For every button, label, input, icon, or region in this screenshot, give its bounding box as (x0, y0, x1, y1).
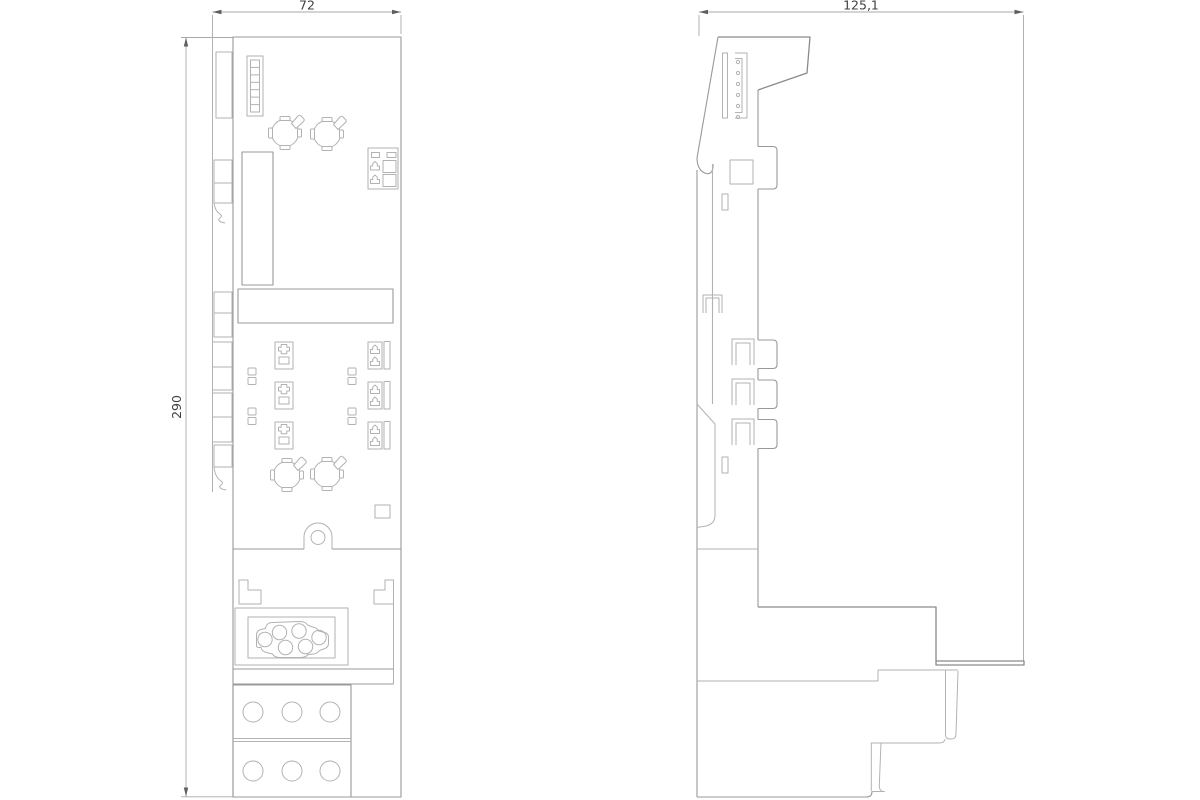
side-groove (697, 404, 715, 528)
din-rail-hook-icon (697, 158, 713, 174)
power-connector (235, 608, 348, 665)
port-blocks-left (275, 342, 293, 449)
connector-pin-icon (272, 625, 286, 639)
arrow-left-icon (213, 10, 222, 14)
terminal-hole-icon (243, 702, 263, 722)
pin-icon (736, 71, 739, 74)
backplane-connector (722, 53, 753, 210)
terminal-hole-icon (282, 761, 302, 781)
dimension-side-width: 125,1 (699, 0, 1024, 661)
arrow-left-icon (699, 10, 708, 14)
label-field-vertical (242, 152, 273, 285)
bracket-icon (732, 419, 754, 445)
screw-hole-icon (311, 531, 325, 545)
arrow-top-icon (184, 38, 188, 47)
terminal-foot-icon (871, 743, 884, 792)
mounting-lug (304, 523, 332, 549)
side-top-outline (718, 37, 810, 90)
pin-icon (736, 60, 739, 63)
dimension-label-height: 290 (169, 395, 184, 419)
pin-icon (736, 82, 739, 85)
dip-switch (247, 56, 263, 116)
side-bottom-profile (697, 607, 1024, 797)
dimension-label-front-width: 72 (299, 0, 315, 13)
port-block-icon (275, 422, 293, 449)
port-block-icon (368, 382, 382, 409)
connector-pin-icon (298, 639, 312, 653)
pin-icon (736, 115, 739, 118)
jack-icon (371, 175, 380, 184)
latch-bump-icon (758, 147, 777, 190)
side-left-slant (697, 37, 718, 158)
front-rail-profile (213, 15, 233, 492)
rotary-switch-icon (269, 115, 305, 149)
pin-icon (736, 93, 739, 96)
dimensional-drawing: 72 125,1 290 (0, 0, 1200, 800)
drawing-canvas: 72 125,1 290 (0, 0, 1200, 800)
rail-clip-icon (214, 203, 225, 223)
front-view (213, 15, 402, 797)
label-field-horizontal (238, 289, 393, 323)
port-block-icon (275, 342, 293, 369)
led-pair-icon (348, 368, 356, 385)
port-block-icon (368, 342, 382, 369)
connector-pin-icon (278, 640, 292, 654)
connector-pin-icon (292, 624, 306, 638)
jack-icon (371, 162, 380, 171)
port-blocks-right (368, 342, 390, 450)
dimension-front-width: 72 (213, 0, 402, 34)
pin-icon (736, 104, 739, 107)
rotary-switch-icon (311, 116, 347, 150)
led-pair-icon (348, 408, 356, 425)
side-brackets (703, 295, 754, 473)
terminal-hole-icon (320, 761, 340, 781)
lower-brackets (239, 580, 394, 684)
rotary-switch-icon (311, 456, 347, 490)
arrow-bottom-icon (184, 788, 188, 797)
comm-port-block (368, 148, 398, 189)
rotary-switch-icon (271, 457, 307, 491)
bracket-icon (732, 379, 754, 405)
led-pair-icon (248, 368, 256, 385)
led-indicators (248, 368, 356, 425)
connector-pin-icon (312, 630, 326, 644)
latch-bump-icon (758, 340, 777, 369)
port-block-icon (275, 382, 293, 409)
bracket-icon (732, 339, 754, 365)
arrow-right-icon (1015, 10, 1024, 14)
latch-bump-icon (758, 380, 777, 409)
connector-pin-icon (258, 632, 272, 646)
front-housing-outline (233, 37, 401, 797)
terminal-hole-icon (243, 761, 263, 781)
led-pair-icon (248, 408, 256, 425)
terminal-foot-icon (946, 670, 959, 739)
side-right-edge (758, 90, 777, 607)
side-view (697, 37, 1024, 797)
rotary-switches-top (269, 115, 347, 150)
dimension-label-side-width: 125,1 (843, 0, 879, 13)
terminal-hole-icon (282, 702, 302, 722)
terminal-block (233, 669, 394, 797)
rotary-switches-bottom (271, 456, 391, 518)
arrow-right-icon (392, 10, 401, 14)
terminal-hole-icon (320, 702, 340, 722)
rail-clip-icon (214, 467, 226, 490)
latch-bump-icon (758, 420, 777, 449)
port-block-icon (368, 422, 382, 449)
